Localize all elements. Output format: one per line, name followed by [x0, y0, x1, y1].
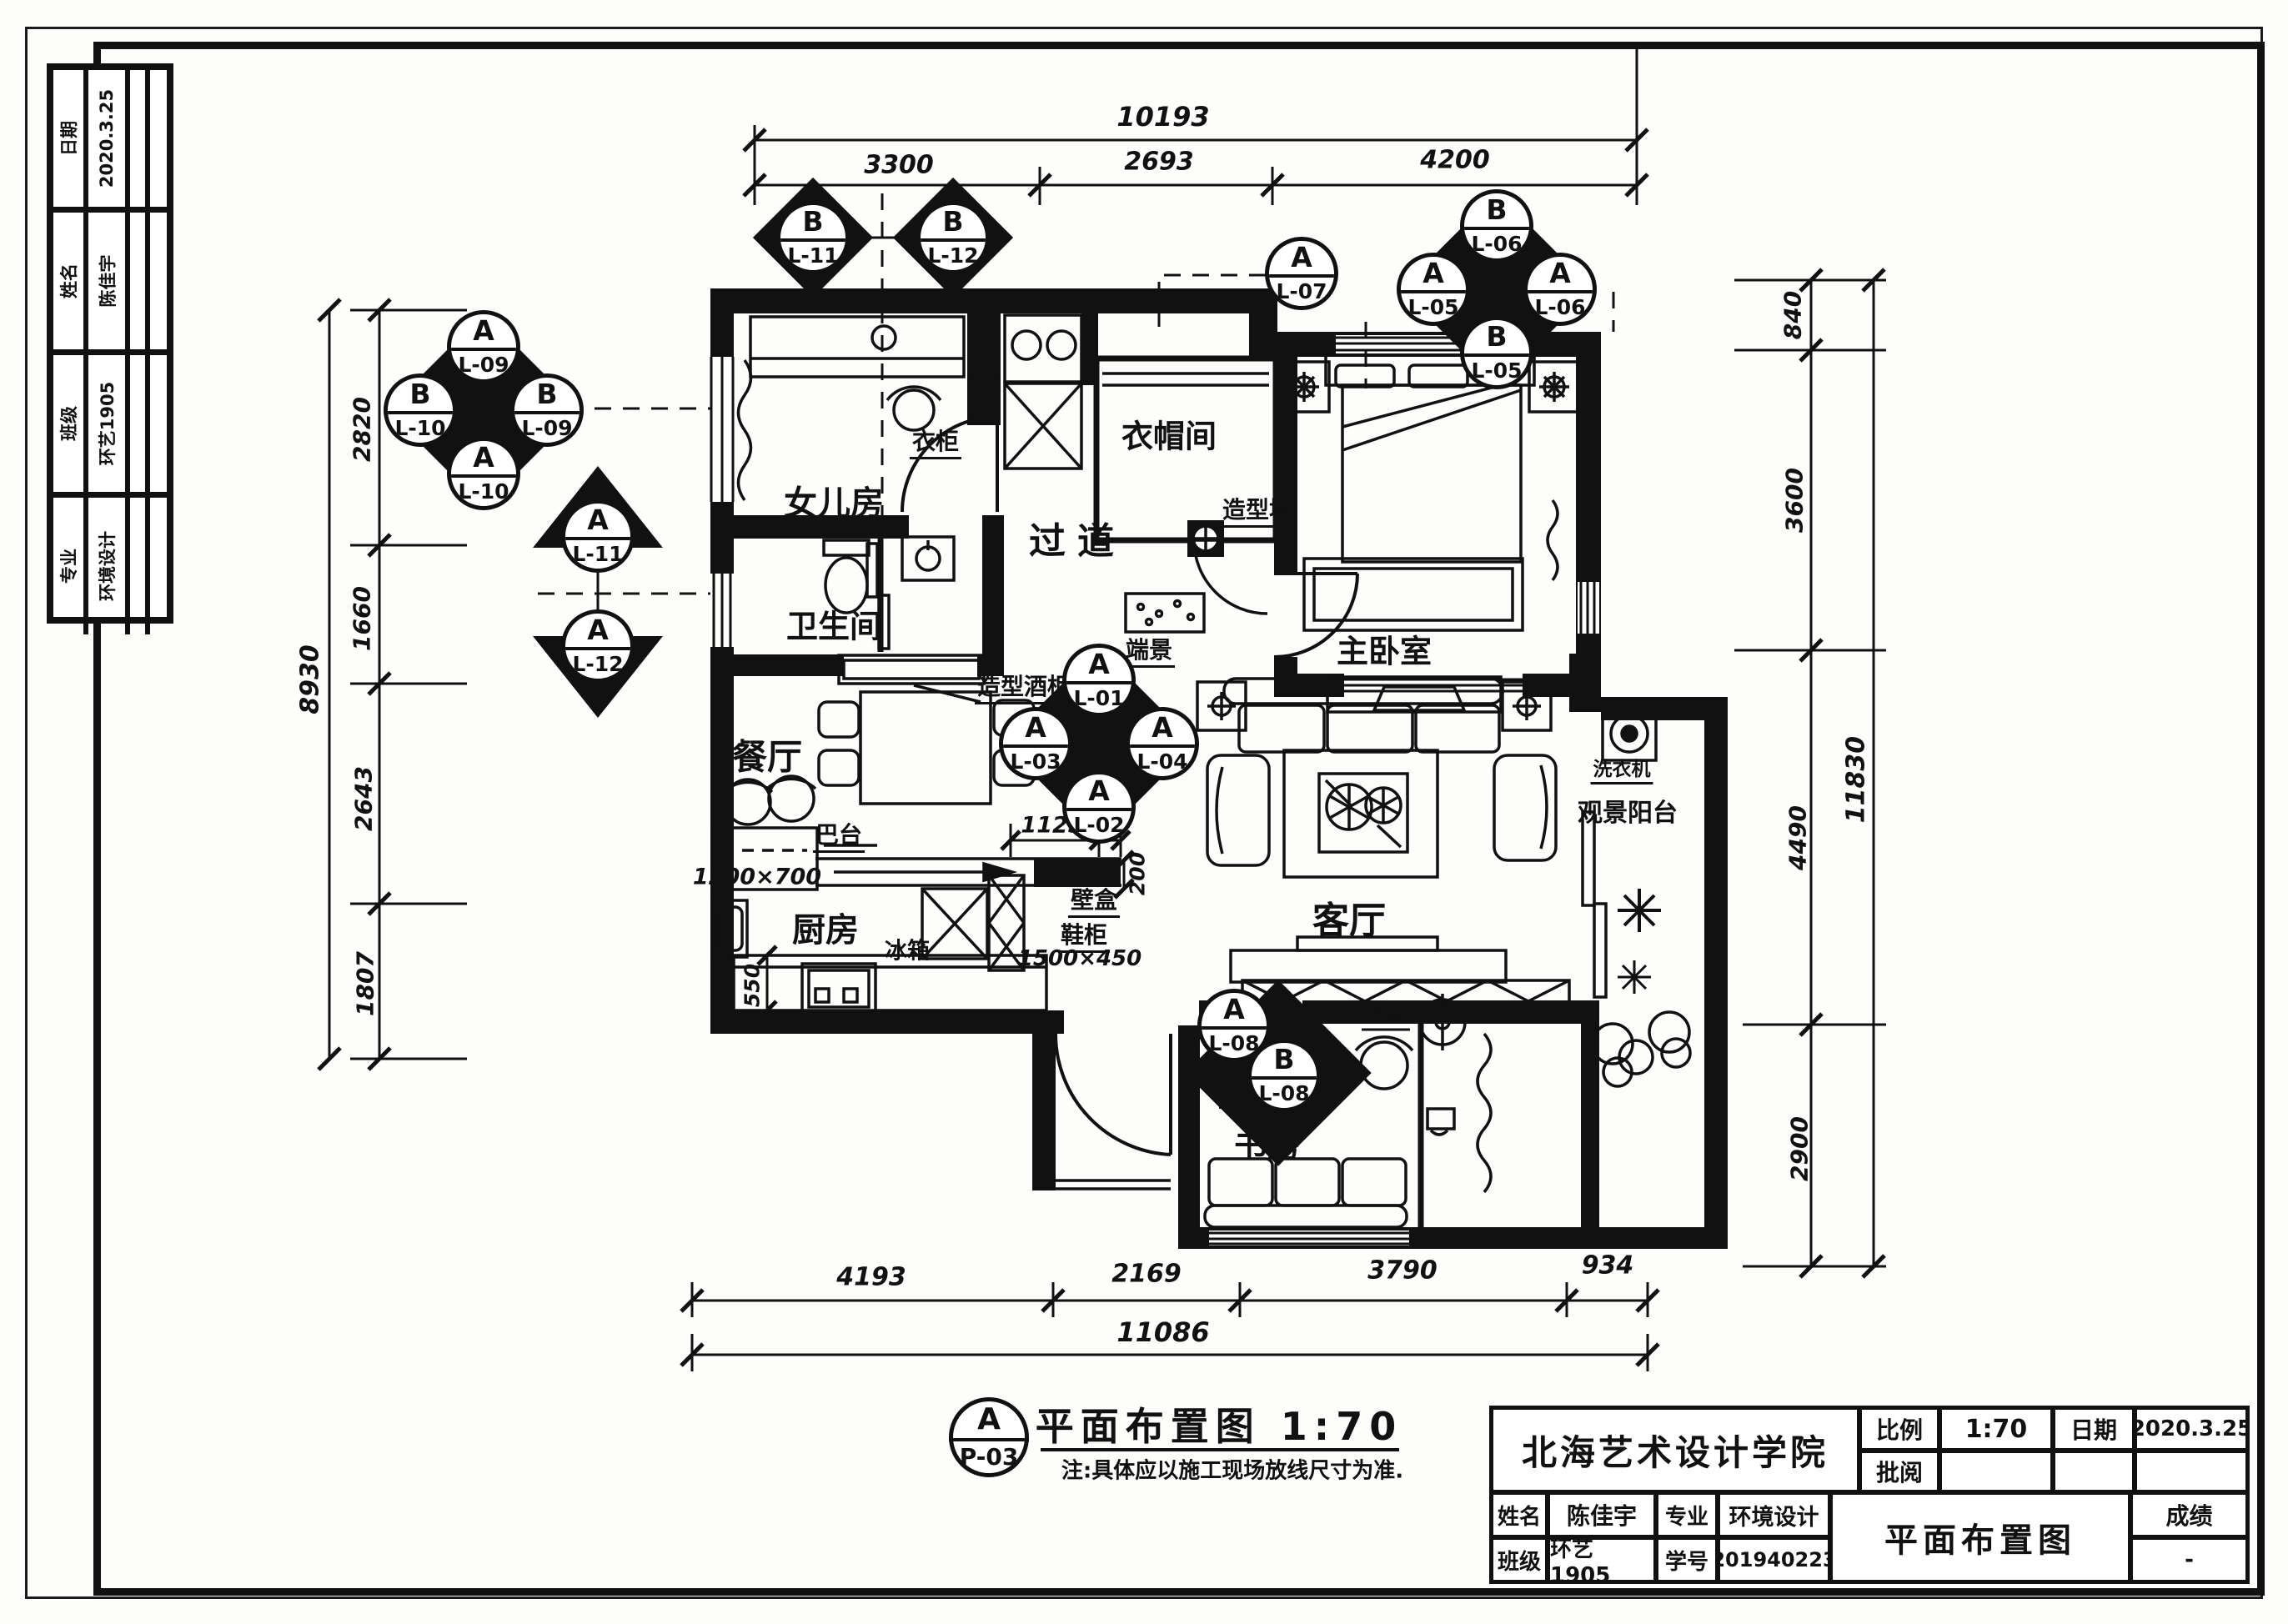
marker-circle: AL-04 [1126, 707, 1199, 780]
title-block-scale-label: 比例 [1858, 1406, 1941, 1452]
marker-circle: AL-09 [447, 310, 520, 383]
revision-cell: 专业 [53, 498, 88, 634]
marker-letter: A [1025, 711, 1046, 744]
revision-row: 班级 环艺1905 [53, 355, 167, 498]
marker-letter: B [409, 378, 430, 411]
revision-value: 环境设计 [94, 531, 119, 601]
title-block: 北海艺术设计学院 比例 1:70 日期 2020.3.25 批阅 姓名 陈佳宇 … [1489, 1406, 2250, 1584]
marker-letter: B [1486, 320, 1507, 353]
marker-circle: BL-06 [1460, 189, 1533, 263]
marker-letter: A [587, 614, 609, 647]
dim-200: 200 [1126, 852, 1150, 895]
title-block-scale-value: 1:70 [1938, 1406, 2055, 1452]
title-block-review-value [1938, 1449, 2055, 1494]
revision-cell: 环境设计 [88, 498, 130, 634]
marker-circle: AL-07 [1265, 237, 1338, 310]
floor-plan-sheet: 女儿房 卫生间 过道 衣帽间 主卧室 餐厅 厨房 客厅 书房 观景阳台 衣柜 造… [0, 0, 2288, 1624]
marker-letter: A [1422, 257, 1444, 290]
revision-row: 专业 环境设计 [53, 498, 167, 634]
revision-value: 环艺1905 [94, 382, 119, 465]
title-block-school: 北海艺术设计学院 [1489, 1406, 1861, 1494]
marker-circle: AL-01 [1062, 644, 1136, 717]
dim-right-total: 11830 [1842, 736, 1871, 823]
title-block-id-value: 201940223 [1716, 1536, 1832, 1584]
elevation-marker-a12: AL-12 [535, 593, 660, 718]
dim-right-1: 840 [1779, 291, 1807, 339]
room-label-closet: 衣帽间 [1121, 411, 1217, 457]
marker-circle: BL-08 [1247, 1039, 1321, 1112]
dim-left-4: 1807 [352, 951, 379, 1016]
revision-cell [130, 70, 150, 207]
marker-circle: AL-06 [1523, 253, 1597, 326]
marker-circle: BL-11 [776, 201, 850, 274]
dim-top-total: 10193 [1116, 101, 1209, 133]
marker-circle: BL-10 [384, 373, 457, 447]
label-wardrobe: 衣柜 [910, 428, 961, 459]
drawing-tag-letter: A [977, 1401, 1001, 1438]
dim-bottom-4: 934 [1582, 1251, 1634, 1281]
drawing-note: 注:具体应以施工现场放线尺寸为准. [1061, 1454, 1403, 1485]
dim-bottom-2: 2169 [1111, 1260, 1182, 1289]
title-block-id-label: 学号 [1654, 1536, 1719, 1584]
marker-circle: AL-03 [999, 707, 1072, 780]
marker-code: L-10 [448, 474, 519, 506]
elevation-marker-center4: AL-01 AL-03 AL-04 AL-02 [999, 644, 1199, 844]
elevation-marker-a07: AL-07 [1265, 237, 1342, 313]
marker-circle: AL-10 [447, 437, 520, 510]
marker-letter: B [802, 205, 823, 238]
title-block-major-value: 环境设计 [1716, 1491, 1832, 1539]
marker-letter: A [587, 504, 609, 537]
dim-bottom-1: 4193 [836, 1263, 906, 1292]
marker-code: L-05 [1461, 353, 1533, 385]
marker-letter: A [1223, 993, 1245, 1026]
label-washer: 洗衣机 [1591, 759, 1653, 784]
dim-left-2: 1660 [349, 586, 376, 651]
marker-letter: A [1291, 241, 1312, 274]
dim-left-3: 2643 [350, 766, 378, 831]
room-label-living: 客厅 [1312, 890, 1386, 944]
revision-cell [150, 213, 167, 349]
room-label-balcony: 观景阳台 [1578, 792, 1678, 829]
elevation-marker-topright4: BL-06 AL-05 AL-06 BL-05 [1397, 189, 1597, 389]
marker-circle: BL-09 [510, 373, 584, 447]
revision-label: 班级 [56, 406, 81, 441]
drawing-tag-code: P-03 [949, 1438, 1029, 1473]
revision-cell [150, 355, 167, 492]
marker-letter: A [1152, 711, 1173, 744]
marker-letter: A [473, 314, 494, 348]
revision-label: 姓名 [56, 263, 81, 298]
marker-code: L-11 [562, 537, 634, 569]
revision-row: 姓名 陈佳宇 [53, 213, 167, 355]
title-block-date-label: 日期 [2051, 1406, 2136, 1452]
dim-550: 550 [740, 964, 765, 1007]
dim-bottom-total: 11086 [1116, 1316, 1209, 1348]
title-block-empty [2051, 1449, 2136, 1494]
title-block-grade-value: - [2129, 1536, 2250, 1584]
dim-bottom-3: 3790 [1367, 1256, 1438, 1286]
revision-cell: 2020.3.25 [88, 70, 130, 207]
label-bar-size: 1200×700 [693, 865, 821, 890]
revision-value: 2020.3.25 [97, 89, 117, 188]
title-block-drawing-name: 平面布置图 [1829, 1491, 2132, 1584]
room-label-kitchen: 厨房 [792, 903, 859, 951]
elevation-marker-study-pair: AL-08 BL-08 [1182, 977, 1374, 1169]
revision-label: 专业 [56, 549, 81, 584]
room-label-master: 主卧室 [1337, 626, 1432, 672]
marker-letter: B [536, 378, 557, 411]
dim-left-1: 2820 [349, 397, 376, 462]
marker-letter: A [1088, 774, 1110, 808]
title-block-review-label: 批阅 [1858, 1449, 1941, 1494]
revision-cell: 陈佳宇 [88, 213, 130, 349]
dim-right-4: 2900 [1786, 1116, 1814, 1181]
dim-left-total: 8930 [296, 644, 325, 714]
title-block-class-label: 班级 [1489, 1536, 1549, 1584]
marker-circle: AL-05 [1397, 253, 1470, 326]
room-label-bath: 卫生间 [786, 601, 881, 647]
revision-cell [130, 498, 150, 634]
revision-strip: 日期 2020.3.25 姓名 陈佳宇 班级 环艺1905 专业 环境设计 [47, 63, 173, 624]
marker-circle: BL-12 [916, 201, 990, 274]
label-feature-wall: 造型墙 [1220, 496, 1295, 528]
revision-label: 日期 [56, 121, 81, 156]
title-block-date-value: 2020.3.25 [2133, 1406, 2250, 1452]
revision-cell [130, 213, 150, 349]
dim-top-2: 2693 [1124, 148, 1194, 177]
marker-letter: A [473, 441, 494, 474]
marker-letter: B [1486, 193, 1507, 227]
marker-circle: BL-05 [1460, 316, 1533, 389]
revision-cell [130, 355, 150, 492]
marker-letter: A [1088, 648, 1110, 681]
revision-row: 日期 2020.3.25 [53, 70, 167, 213]
drawing-title-underline [1041, 1448, 1399, 1451]
elevation-marker-a11: AL-11 [535, 466, 660, 591]
marker-letter: A [1549, 257, 1571, 290]
revision-cell: 班级 [53, 355, 88, 492]
marker-letter: B [1273, 1043, 1294, 1076]
title-block-name-value: 陈佳宇 [1546, 1491, 1658, 1539]
marker-code: L-07 [1266, 274, 1337, 306]
room-label-daughter: 女儿房 [784, 476, 884, 524]
marker-circle: AL-11 [561, 499, 635, 573]
label-fridge: 冰箱 [882, 939, 932, 969]
revision-cell: 姓名 [53, 213, 88, 349]
label-niche: 壁盒 [1068, 886, 1120, 918]
title-block-class-value: 环艺1905 [1546, 1536, 1658, 1584]
label-bar: 巴台 [813, 821, 865, 853]
elevation-marker-b11: BL-11 [750, 175, 876, 300]
revision-value: 陈佳宇 [94, 255, 119, 308]
revision-cell [150, 498, 167, 634]
title-block-major-label: 专业 [1654, 1491, 1719, 1539]
title-block-empty [2133, 1449, 2250, 1494]
elevation-marker-b12: BL-12 [891, 175, 1016, 300]
revision-cell: 日期 [53, 70, 88, 207]
title-block-grade-label: 成绩 [2129, 1491, 2250, 1539]
marker-letter: B [942, 205, 963, 238]
drawing-title: 平面布置图 1:70 [1036, 1396, 1402, 1451]
label-shoe-size: 1500×450 [1018, 946, 1141, 971]
drawing-tag: A P-03 [949, 1397, 1029, 1477]
revision-cell: 环艺1905 [88, 355, 130, 492]
title-block-name-label: 姓名 [1489, 1491, 1549, 1539]
revision-cell [150, 70, 167, 207]
marker-circle: AL-12 [561, 609, 635, 683]
room-label-corridor: 过道 [1029, 511, 1126, 564]
dim-right-2: 3600 [1781, 468, 1809, 533]
marker-code: L-02 [1063, 808, 1135, 840]
dim-top-3: 4200 [1420, 146, 1490, 175]
room-label-dining: 餐厅 [732, 729, 802, 780]
marker-circle: AL-02 [1062, 770, 1136, 844]
dim-right-3: 4490 [1784, 805, 1812, 870]
